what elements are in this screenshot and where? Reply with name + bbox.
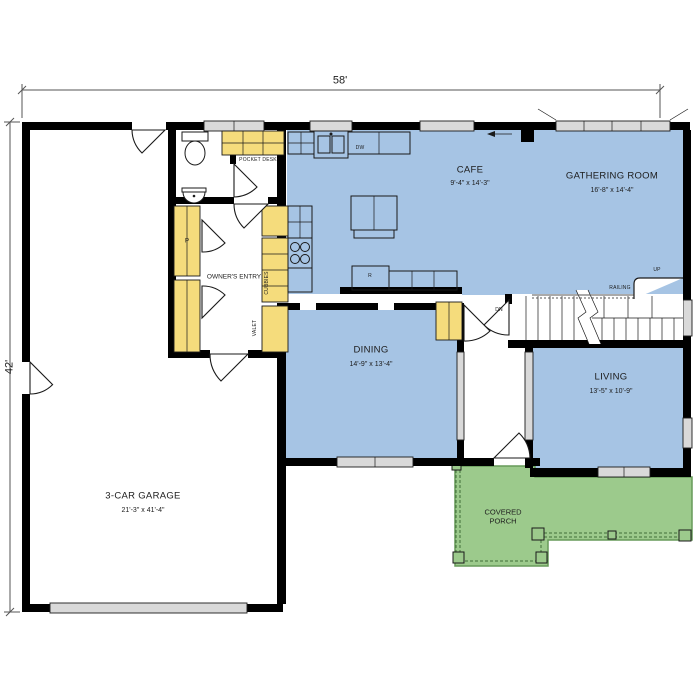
room-label-gathering: GATHERING ROOM [566,172,658,183]
window [683,300,692,336]
entry-closet-door [202,220,225,252]
garage-door [50,603,247,613]
dishwasher-label: DW [356,146,365,152]
porch-post [532,528,544,540]
cubby-cabinet [262,206,288,236]
room-dims-dining: 14'-9" x 13'-4" [349,361,392,369]
stairs-up-label: UP [653,268,660,274]
overall-height-dimension: 42' [4,360,17,374]
room-dims-garage: 21'-3" x 41'-4" [121,507,164,515]
sidelite [457,352,464,440]
entry-to-garage-door [210,354,248,381]
porch-post [536,552,547,563]
window [683,418,692,448]
cubbies-label: CUBBIES [265,271,271,294]
powder-door [234,164,257,197]
valet-cabinet [262,306,288,352]
garage-side-door [30,362,53,394]
room-label-living: LIVING [595,373,628,384]
railing-label: RAILING [609,286,630,292]
room-dims-cafe: 9'-4" x 14'-3" [450,180,489,188]
floor-plan-drawing [0,0,700,700]
room-dims-living: 13'-5" x 10'-9" [589,388,632,396]
room-label-owners-entry: OWNER'S ENTRY [206,273,262,280]
porch-post [453,552,464,563]
bay-window [538,109,688,131]
pantry-label: P [185,239,189,246]
toilet-tank [182,132,208,141]
floor-plan: 58' 42' POCKET DESK OWNER'S ENTRY P CUBB… [0,0,700,700]
entry-closet-door [202,286,225,318]
range-label: R [368,274,372,280]
room-label-pocket-desk: POCKET DESK [239,158,277,164]
room-label-covered-porch: COVERED PORCH [472,508,534,525]
room-dims-gathering: 16'-8" x 14'-4" [590,187,633,195]
room-label-garage: 3-CAR GARAGE [105,492,180,503]
room-label-cafe: CAFE [457,166,484,177]
porch-post [608,531,616,539]
stairs-down-label: DN [495,308,503,314]
room-label-dining: DINING [353,346,388,357]
toilet-bowl [185,141,205,165]
garage-service-door [132,130,165,153]
porch-post [679,530,691,541]
window [420,121,474,131]
overall-width-dimension: 58' [333,75,347,88]
valet-label: VALET [253,320,259,336]
window [310,121,352,131]
sidelite [525,352,533,440]
powder-room [182,132,208,203]
